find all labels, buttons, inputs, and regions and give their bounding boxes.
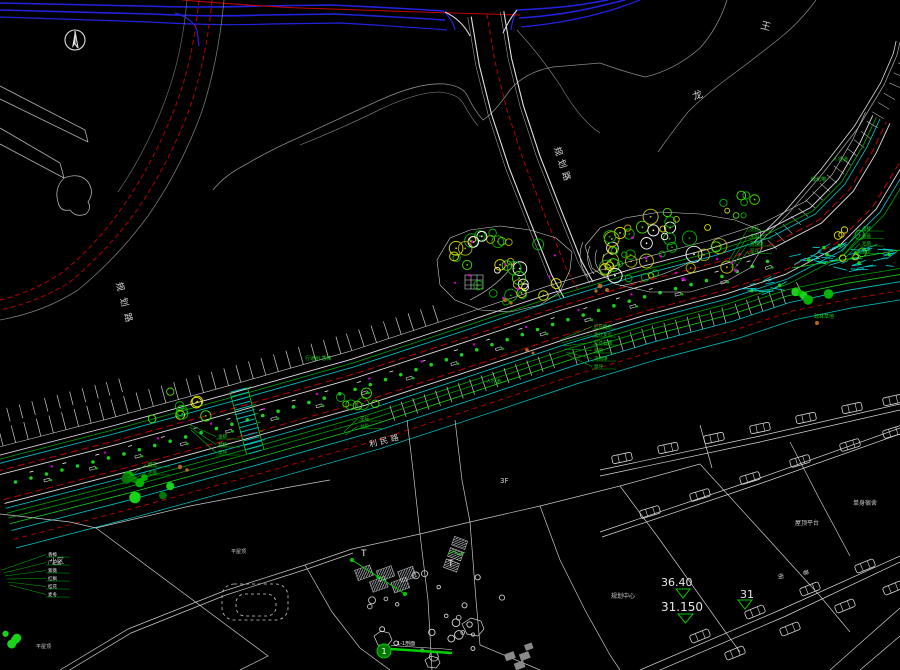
water-hatch-stroke: [234, 397, 249, 401]
tree-center-dot: [205, 415, 207, 417]
parking-tick: [261, 358, 266, 375]
median-planter: [451, 361, 457, 365]
street-tree: [658, 291, 662, 295]
water-hatch-stroke: [240, 423, 256, 427]
street-tree: [705, 279, 709, 283]
parking-tick: [57, 395, 61, 409]
lane-mark: [62, 463, 66, 464]
road-line: [754, 41, 896, 242]
median-shrub: [681, 293, 684, 296]
median-planter: [406, 376, 412, 380]
plant-label: 紫薇: [48, 567, 57, 574]
lane-mark: [747, 261, 751, 262]
plant-label: 麦冬: [48, 591, 57, 598]
median-planter: [271, 417, 277, 421]
tree-center-dot: [652, 230, 654, 232]
street-tree: [460, 353, 464, 357]
plant-label: 碧桃: [218, 441, 227, 448]
median-planter: [495, 347, 501, 351]
tree-symbol: [834, 232, 842, 240]
tree-symbol: [716, 258, 718, 260]
parking-tick: [359, 330, 365, 347]
plant-leader-line: [565, 349, 593, 351]
water-hatch-stroke: [249, 450, 262, 453]
tree-symbol: [733, 213, 739, 219]
tree-symbol: [498, 237, 506, 245]
tree-symbol: [803, 295, 813, 305]
utility-dot: [473, 343, 475, 345]
plant-label: 红叶石楠: [594, 339, 612, 346]
parking-tick: [186, 379, 191, 396]
plant-label: 樱花: [148, 461, 157, 468]
tree-center-dot: [365, 392, 367, 394]
shrub-dot: [857, 261, 861, 265]
plant-label: 草坪: [750, 248, 759, 255]
tree-center-dot: [642, 226, 644, 228]
car-windshield: [710, 435, 712, 443]
tree-symbol: [489, 290, 497, 298]
car-rear-window: [625, 453, 627, 461]
parking-tick: [82, 388, 86, 402]
car-symbol: [841, 402, 862, 414]
parking-tick: [119, 379, 123, 392]
planting-cluster-b: [599, 208, 733, 282]
tree-center-dot: [518, 277, 520, 279]
road-line: [471, 17, 564, 298]
utility-dot: [316, 393, 318, 395]
tree-center-dot: [196, 401, 198, 403]
street-tree: [215, 427, 219, 431]
tree-center-dot: [521, 292, 523, 294]
tree-center-dot: [630, 260, 632, 262]
median-shrub: [231, 430, 234, 433]
band-tick: [258, 422, 261, 423]
parking-tick: [889, 83, 900, 88]
car-windshield: [848, 405, 850, 413]
car-windshield: [805, 587, 808, 594]
tree-symbol: [7, 640, 16, 649]
tree-center-dot: [466, 264, 468, 266]
car-body: [799, 582, 821, 597]
car-symbol: [854, 559, 876, 574]
tree-symbol: [121, 473, 132, 484]
car-windshield: [888, 429, 890, 437]
street-tree: [276, 409, 280, 413]
street-tree: [627, 299, 631, 303]
lane-mark: [583, 308, 587, 309]
utility-dot: [630, 293, 632, 295]
tree-center-dot: [350, 404, 352, 406]
planned-road-top: [468, 11, 593, 299]
plant-label: 毛鹃: [594, 347, 603, 354]
cad-drawing: 1 1-1剖面 36.40 31.150 31 规划路 规划路 利民路 王 龙 …: [0, 0, 900, 670]
parking-tick: [11, 425, 16, 442]
street-tree: [107, 456, 111, 460]
parking-tick: [286, 351, 291, 368]
road-name-planned-top: 规划路: [551, 145, 574, 186]
car-body: [795, 412, 816, 424]
lane-mark: [454, 350, 458, 351]
street-tree: [138, 448, 142, 452]
spot-value: 31: [740, 588, 754, 601]
plant-label: 香樟: [48, 551, 57, 558]
car-body: [703, 432, 724, 444]
gray-blocks: [503, 642, 538, 670]
car-body: [749, 422, 770, 434]
plant-label: 桂花: [48, 583, 57, 590]
car-windshield: [730, 651, 733, 658]
car-body: [611, 452, 632, 464]
street-tree: [14, 480, 18, 484]
parking-tick: [408, 313, 414, 330]
lane-mark: [292, 400, 296, 401]
road-name-south: 利民路: [368, 431, 402, 449]
median-planter: [675, 292, 681, 296]
parking-tick: [124, 396, 129, 413]
utility-dot: [525, 326, 527, 328]
parking-tick: [74, 409, 79, 426]
median-planter: [630, 304, 636, 308]
blue-utility-lines: [0, 0, 640, 46]
tree-center-dot: [669, 221, 671, 223]
tree-center-dot: [669, 238, 671, 240]
parking-tick: [19, 405, 23, 419]
tree-symbol: [129, 492, 140, 503]
median-planter: [540, 332, 546, 336]
tree-center-dot: [455, 247, 457, 249]
parking-tick: [32, 401, 36, 415]
street-tree: [29, 476, 33, 480]
car-rear-window: [867, 561, 870, 568]
tree-center-dot: [610, 259, 612, 261]
street-tree: [597, 309, 601, 313]
parking-tick: [49, 416, 54, 433]
road-line: [504, 11, 593, 282]
car-symbol: [834, 599, 856, 614]
shrub-dot: [822, 246, 826, 250]
median-shrub: [591, 319, 594, 322]
car-symbol: [779, 622, 801, 637]
parking-tick: [396, 317, 402, 334]
median-planter: [765, 265, 771, 269]
car-rear-window: [763, 423, 765, 431]
tree-center-dot: [611, 238, 613, 240]
parking-tick: [70, 392, 74, 406]
tree-symbol: [675, 272, 677, 274]
median-shrub: [50, 479, 53, 482]
utility-dot: [210, 423, 212, 425]
plant-leader-line: [566, 352, 592, 359]
street-tree: [261, 414, 265, 418]
lane-mark: [519, 328, 523, 329]
tree-symbol: [468, 274, 471, 277]
map-char-1: 王: [759, 20, 772, 33]
arterial-road: [0, 112, 900, 513]
parking-tick: [7, 408, 11, 422]
median-planter: [180, 442, 186, 446]
car-rear-window: [896, 427, 898, 435]
car-body: [689, 488, 710, 501]
tree-symbol: [499, 595, 504, 600]
shrub-dot: [838, 244, 842, 248]
tree-center-dot: [646, 260, 648, 262]
parking-tick: [383, 321, 389, 338]
tree-symbol: [741, 213, 746, 218]
road-line: [487, 14, 578, 290]
road-line: [757, 42, 900, 245]
street-tree: [122, 452, 126, 456]
car-symbol: [739, 471, 760, 484]
tree-center-dot: [537, 243, 539, 245]
car-rear-window: [895, 583, 898, 590]
utility-dot: [157, 437, 159, 439]
car-body: [839, 438, 860, 451]
tree-symbol: [504, 263, 506, 265]
street-tree: [505, 338, 509, 342]
tree-center-dot: [362, 403, 364, 405]
tree-symbol: [505, 239, 512, 246]
car-windshield: [745, 475, 747, 483]
car-body: [841, 402, 862, 414]
plant-label: 台阶: [360, 423, 369, 430]
site-label: 街: [776, 572, 785, 580]
shrub-stroke: [812, 259, 819, 260]
tree-symbol: [737, 191, 746, 200]
tree-center-dot: [646, 242, 648, 244]
car-rear-window: [855, 403, 857, 411]
tree-center-dot: [671, 246, 673, 248]
parking-tick: [433, 305, 439, 322]
tree-center-dot: [609, 236, 611, 238]
road-line: [7, 140, 900, 513]
plant-label: 金叶女贞: [594, 331, 612, 338]
plant-leader-line: [730, 236, 749, 265]
road-line: [4, 134, 900, 500]
parking-tick: [0, 429, 3, 446]
car-body: [834, 599, 856, 614]
car-rear-window: [757, 607, 760, 614]
car-windshield: [785, 627, 788, 634]
water-hatch-stroke: [235, 401, 250, 405]
tree-symbol: [660, 255, 663, 258]
car-body: [657, 442, 678, 454]
annotation-layer: 规划中心单身宿舍屋顶平台小区平屋顶平屋顶TT人行道绿化带人行道行道树 香樟疏林草…: [2, 156, 884, 650]
tree-center-dot: [477, 284, 479, 286]
street-tree: [536, 328, 540, 332]
shrub-stroke: [857, 265, 873, 268]
plant-label: 垂柳: [862, 225, 871, 232]
tree-center-dot: [726, 266, 728, 268]
cad-viewport[interactable]: 1 1-1剖面 36.40 31.150 31 规划路 规划路 利民路 王 龙 …: [0, 0, 900, 670]
tree-symbol: [824, 289, 834, 299]
greenway-corridor: [8, 268, 900, 548]
site-label: 平屋顶: [36, 644, 51, 650]
parking-tick: [149, 389, 154, 406]
tree-symbol: [661, 233, 668, 240]
tree-symbol: [369, 597, 376, 604]
shrub-stroke: [833, 267, 846, 270]
plant-label: 海桐球: [594, 355, 608, 362]
car-rear-window: [792, 624, 795, 631]
car-windshield: [888, 586, 891, 593]
tree-symbol: [167, 388, 174, 395]
lane-mark: [161, 436, 165, 437]
car-rear-window: [896, 395, 898, 403]
tree-symbol: [437, 585, 441, 589]
car-symbol: [882, 394, 900, 406]
car-rear-window: [809, 413, 811, 421]
parking-tick: [878, 102, 889, 109]
street-tree: [689, 283, 693, 287]
tree-symbol: [743, 192, 750, 199]
plant-leader-line: [563, 343, 592, 347]
shrub-scribble-right: [789, 243, 897, 272]
median-shrub: [322, 404, 325, 407]
street-tree: [76, 464, 80, 468]
parking-tick: [371, 325, 377, 342]
road-line: [0, 123, 890, 475]
car-body: [739, 471, 760, 484]
tree-symbol: [725, 208, 730, 213]
street-tree: [612, 304, 616, 308]
tree-symbol: [450, 252, 459, 261]
street-tree: [643, 295, 647, 299]
street-tree: [581, 313, 585, 317]
right-trees-2: [791, 288, 833, 305]
site-label: 行道树 香樟: [305, 355, 332, 362]
parking-tick: [273, 354, 278, 371]
parking-tick: [827, 175, 837, 183]
car-windshield: [840, 604, 843, 611]
lane-mark: [649, 288, 653, 289]
parking-tick: [211, 372, 216, 389]
parking-tick: [36, 419, 41, 436]
median-shrub: [141, 455, 144, 458]
street-tree: [322, 396, 326, 400]
street-tree: [445, 358, 449, 362]
street-tree: [168, 439, 172, 443]
road-line: [500, 12, 590, 284]
tree-center-dot: [690, 267, 692, 269]
street-tree: [91, 460, 95, 464]
car-symbol: [882, 581, 900, 596]
street-tree: [720, 275, 724, 279]
site-label: 人行道: [833, 156, 848, 163]
median-shrub: [412, 377, 415, 380]
shrub-stroke: [789, 254, 801, 256]
tree-symbol: [705, 225, 711, 231]
tree-center-dot: [718, 245, 720, 247]
car-symbol: [611, 452, 632, 464]
tree-symbol: [455, 631, 464, 640]
parking-tick: [248, 361, 253, 378]
parking-tick: [99, 403, 104, 420]
water-hatch-stroke: [235, 409, 255, 414]
road-names: 规划路 规划路 利民路 王 龙 3F: [113, 20, 772, 485]
tree-symbol: [159, 492, 167, 500]
lane-mark: [226, 418, 230, 419]
car-windshield: [802, 415, 804, 423]
shrub-dot: [807, 258, 811, 262]
car-body: [779, 622, 801, 637]
tree-symbol: [371, 400, 379, 408]
car-symbol: [749, 422, 770, 434]
street-tree: [230, 422, 234, 426]
median-shrub: [277, 417, 280, 420]
median-shrub: [771, 266, 774, 269]
shrub-stroke: [886, 265, 894, 266]
road-name-planned-left: 规划路: [113, 281, 137, 330]
tree-center-dot: [510, 294, 512, 296]
shrub-dot: [825, 253, 829, 257]
road-line: [14, 289, 900, 539]
median-shrub: [636, 305, 639, 308]
car-symbol: [703, 432, 724, 444]
parking-tick: [44, 398, 48, 412]
shrub-dot: [887, 253, 891, 257]
band-edge: [247, 388, 264, 450]
utility-dot: [368, 377, 370, 379]
median-shrub: [457, 362, 460, 365]
car-symbol: [839, 438, 860, 451]
site-label: 绿化带: [811, 176, 826, 183]
tree-center-dot: [605, 268, 607, 270]
parking-tick: [224, 368, 229, 385]
plant-label: 栾树: [750, 233, 759, 240]
tree-center-dot: [181, 413, 183, 415]
tree-center-dot: [464, 248, 466, 250]
tree-symbol: [652, 270, 658, 276]
parking-tick: [336, 337, 341, 354]
cars-row-1: [611, 394, 900, 464]
car-symbol: [795, 412, 816, 424]
street-tree: [521, 333, 525, 337]
parking-tick: [884, 93, 895, 100]
lane-mark: [29, 471, 33, 472]
car-rear-window: [717, 433, 719, 441]
section-label: 1-1剖面: [397, 640, 415, 647]
utility-dot: [263, 408, 265, 410]
parking-road-upper: [600, 404, 900, 537]
spot-elevations: 36.40 31.150 31: [661, 576, 754, 623]
road-line: [6, 138, 900, 509]
utility-dot: [420, 360, 422, 362]
site-label: T: [447, 559, 454, 569]
car-rear-window: [671, 443, 673, 451]
street-tree: [384, 378, 388, 382]
tree-symbol: [475, 575, 480, 580]
band-tick: [253, 404, 256, 405]
tree-center-dot: [650, 216, 652, 218]
map-char-2: 龙: [691, 87, 705, 103]
lane-mark: [357, 381, 361, 382]
tree-symbol: [367, 604, 372, 609]
plant-leader-line: [191, 430, 216, 453]
car-body: [854, 559, 876, 574]
water-hatch-stroke: [247, 445, 262, 449]
parking-tick: [174, 382, 179, 399]
tree-symbol: [734, 269, 737, 272]
plant-leader-line: [7, 579, 47, 580]
tree-symbol: [452, 619, 460, 627]
tree-center-dot: [543, 295, 545, 297]
utility-dot: [577, 309, 579, 311]
plant-leader-line: [10, 585, 47, 595]
street-tree: [153, 444, 157, 448]
plant-label: 花坛: [360, 415, 369, 422]
terrain-contours: [213, 0, 816, 190]
site-label: 人行道: [486, 378, 501, 385]
